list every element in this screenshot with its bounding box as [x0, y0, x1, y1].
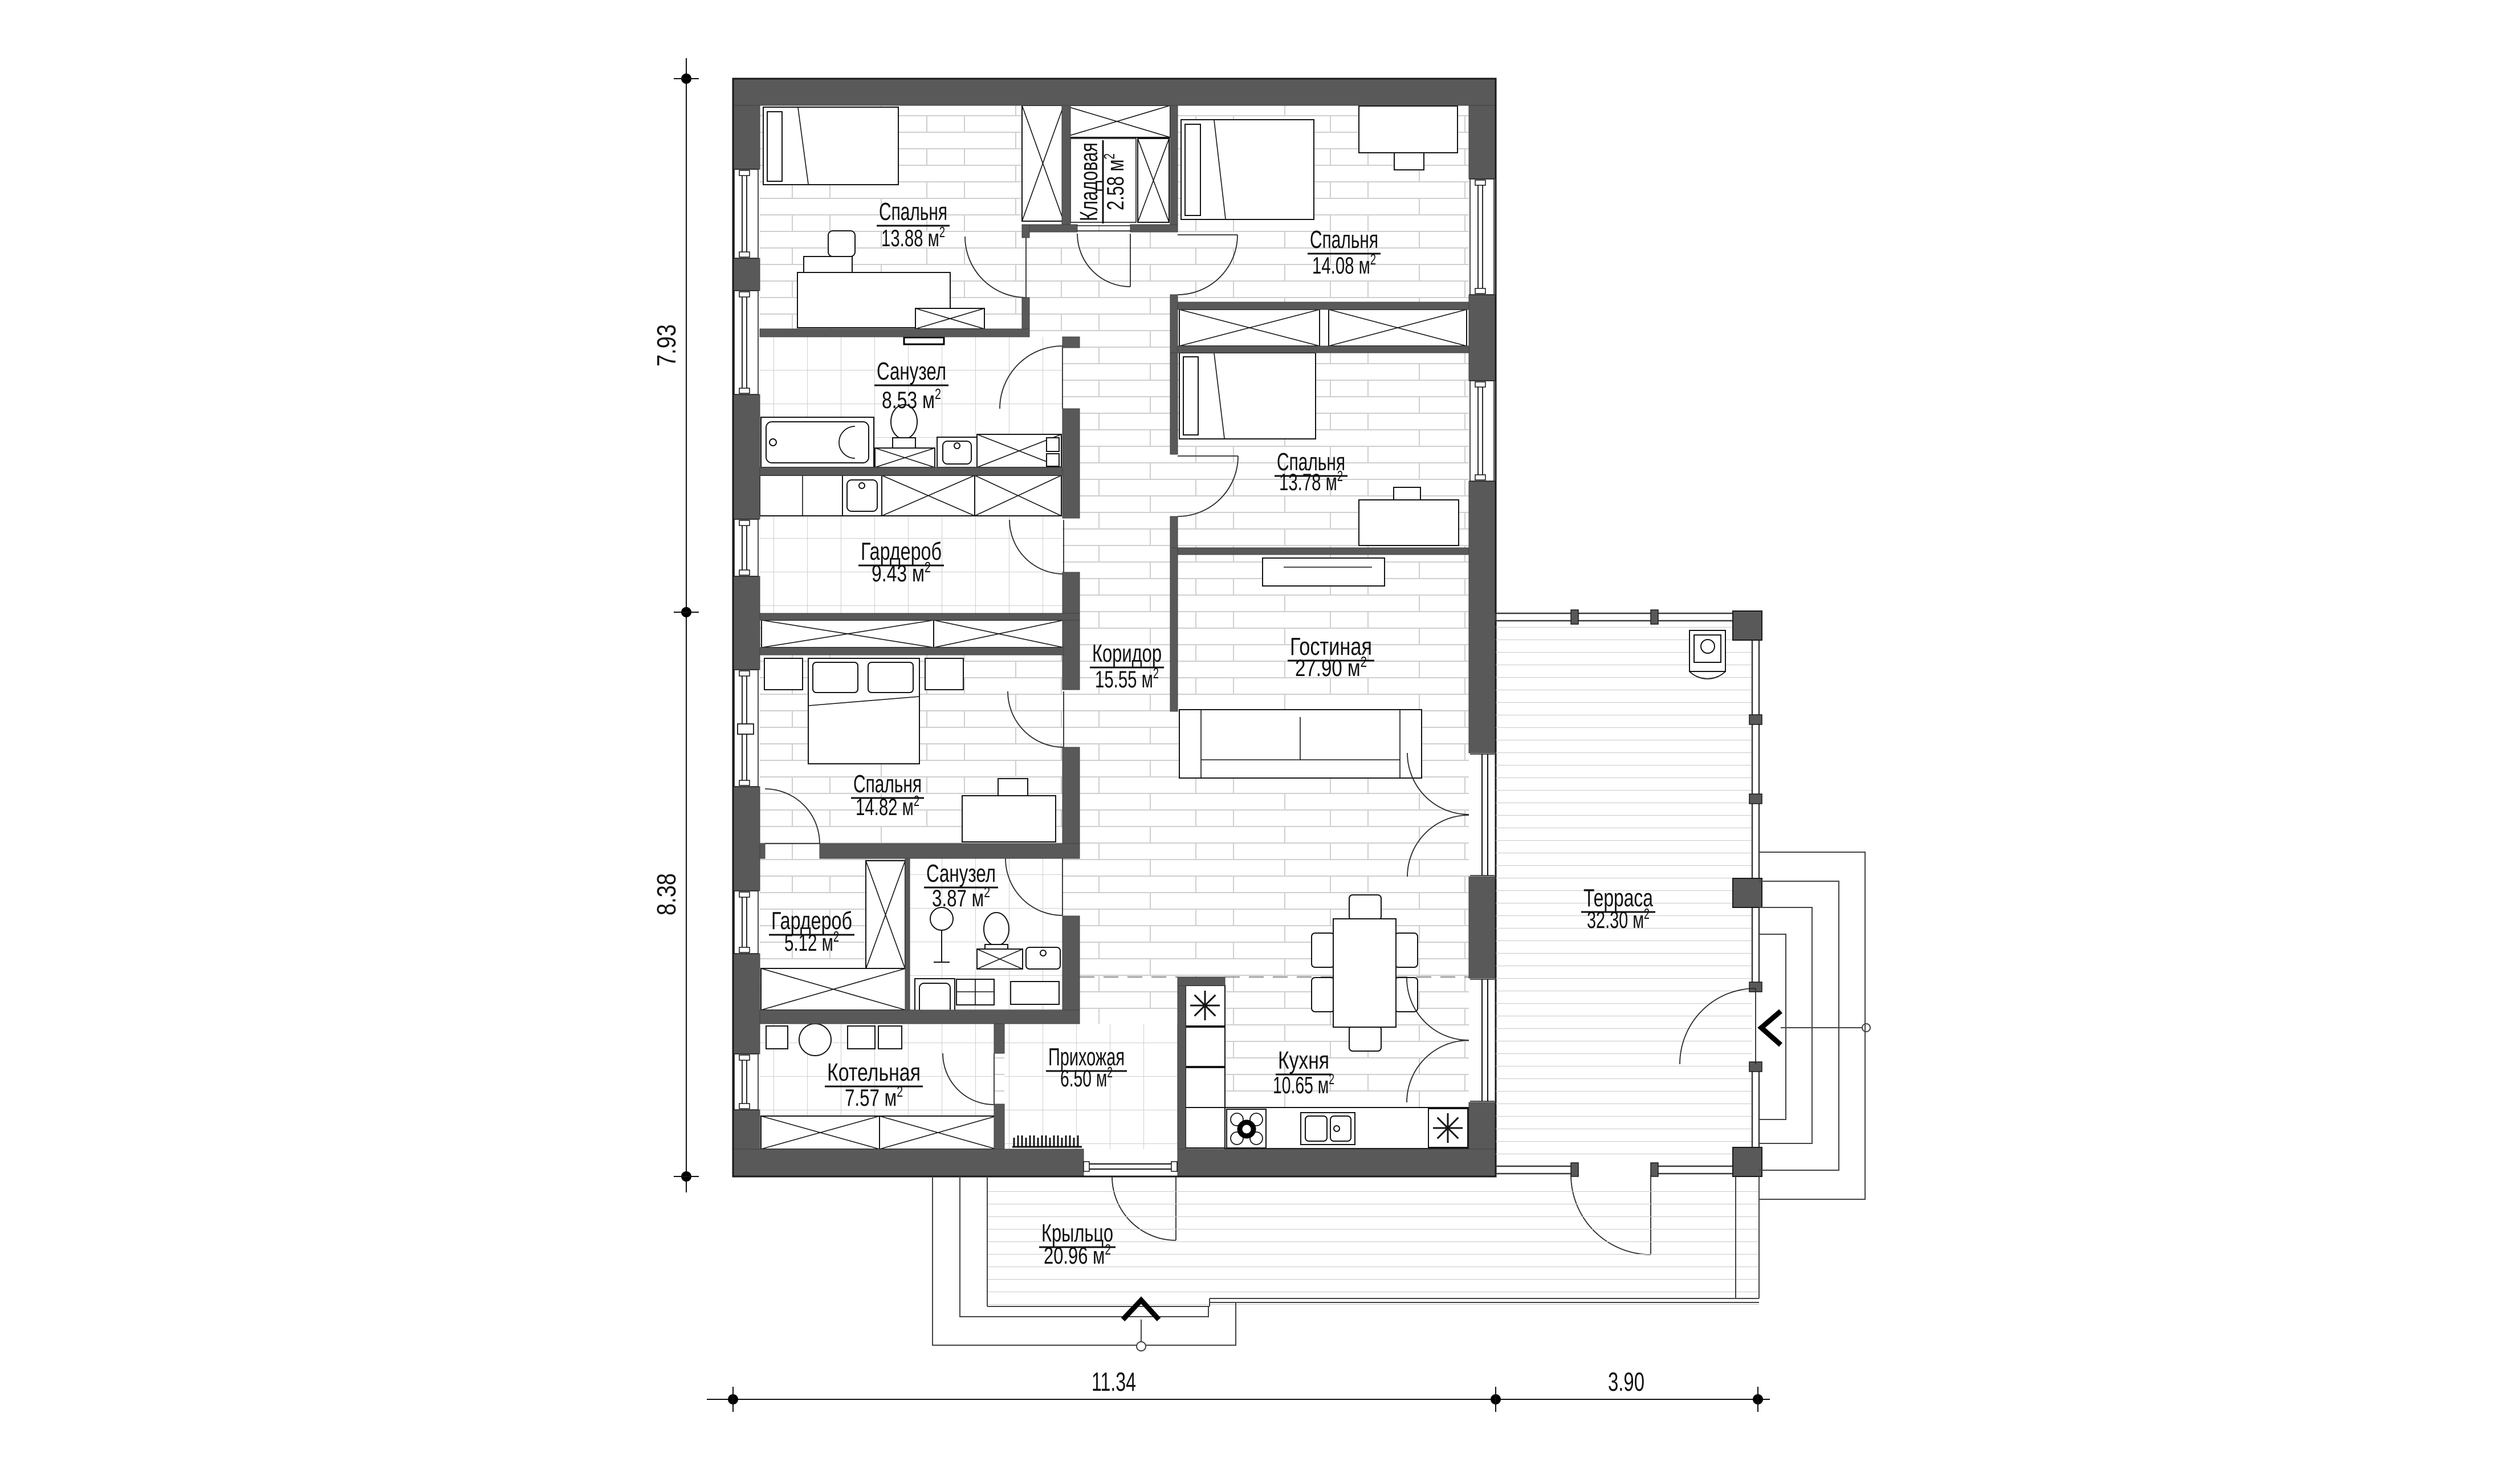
svg-text:6.50 м2: 6.50 м2	[1060, 1064, 1113, 1092]
svg-text:11.34: 11.34	[1092, 1367, 1136, 1396]
svg-text:Спальня: Спальня	[1310, 226, 1378, 254]
svg-text:Кладовая: Кладовая	[1075, 142, 1103, 221]
svg-text:32.30 м2: 32.30 м2	[1587, 905, 1650, 933]
svg-text:7.57 м2: 7.57 м2	[845, 1083, 903, 1111]
svg-text:3.90: 3.90	[1608, 1367, 1644, 1396]
svg-text:8.38: 8.38	[652, 873, 681, 915]
svg-text:Коридор: Коридор	[1092, 640, 1162, 667]
svg-text:3.87 м2: 3.87 м2	[932, 883, 990, 911]
svg-text:Кухня: Кухня	[1278, 1047, 1329, 1074]
svg-text:14.82 м2: 14.82 м2	[856, 792, 919, 820]
svg-text:8.53 м2: 8.53 м2	[882, 385, 941, 413]
svg-text:27.90 м2: 27.90 м2	[1295, 653, 1367, 681]
svg-text:15.55 м2: 15.55 м2	[1095, 665, 1159, 693]
svg-text:13.78 м2: 13.78 м2	[1279, 467, 1343, 495]
svg-text:9.43 м2: 9.43 м2	[872, 559, 931, 587]
svg-text:Спальня: Спальня	[879, 198, 947, 226]
svg-text:7.93: 7.93	[652, 324, 681, 367]
svg-text:14.08 м2: 14.08 м2	[1312, 251, 1376, 279]
svg-text:2.58 м2: 2.58 м2	[1101, 153, 1129, 210]
svg-text:13.88 м2: 13.88 м2	[881, 223, 945, 251]
svg-text:Котельная: Котельная	[827, 1058, 921, 1086]
svg-text:10.65 м2: 10.65 м2	[1273, 1070, 1334, 1098]
svg-text:20.96 м2: 20.96 м2	[1044, 1241, 1111, 1269]
svg-text:5.12 м2: 5.12 м2	[784, 928, 839, 956]
svg-text:Санузел: Санузел	[877, 357, 946, 385]
